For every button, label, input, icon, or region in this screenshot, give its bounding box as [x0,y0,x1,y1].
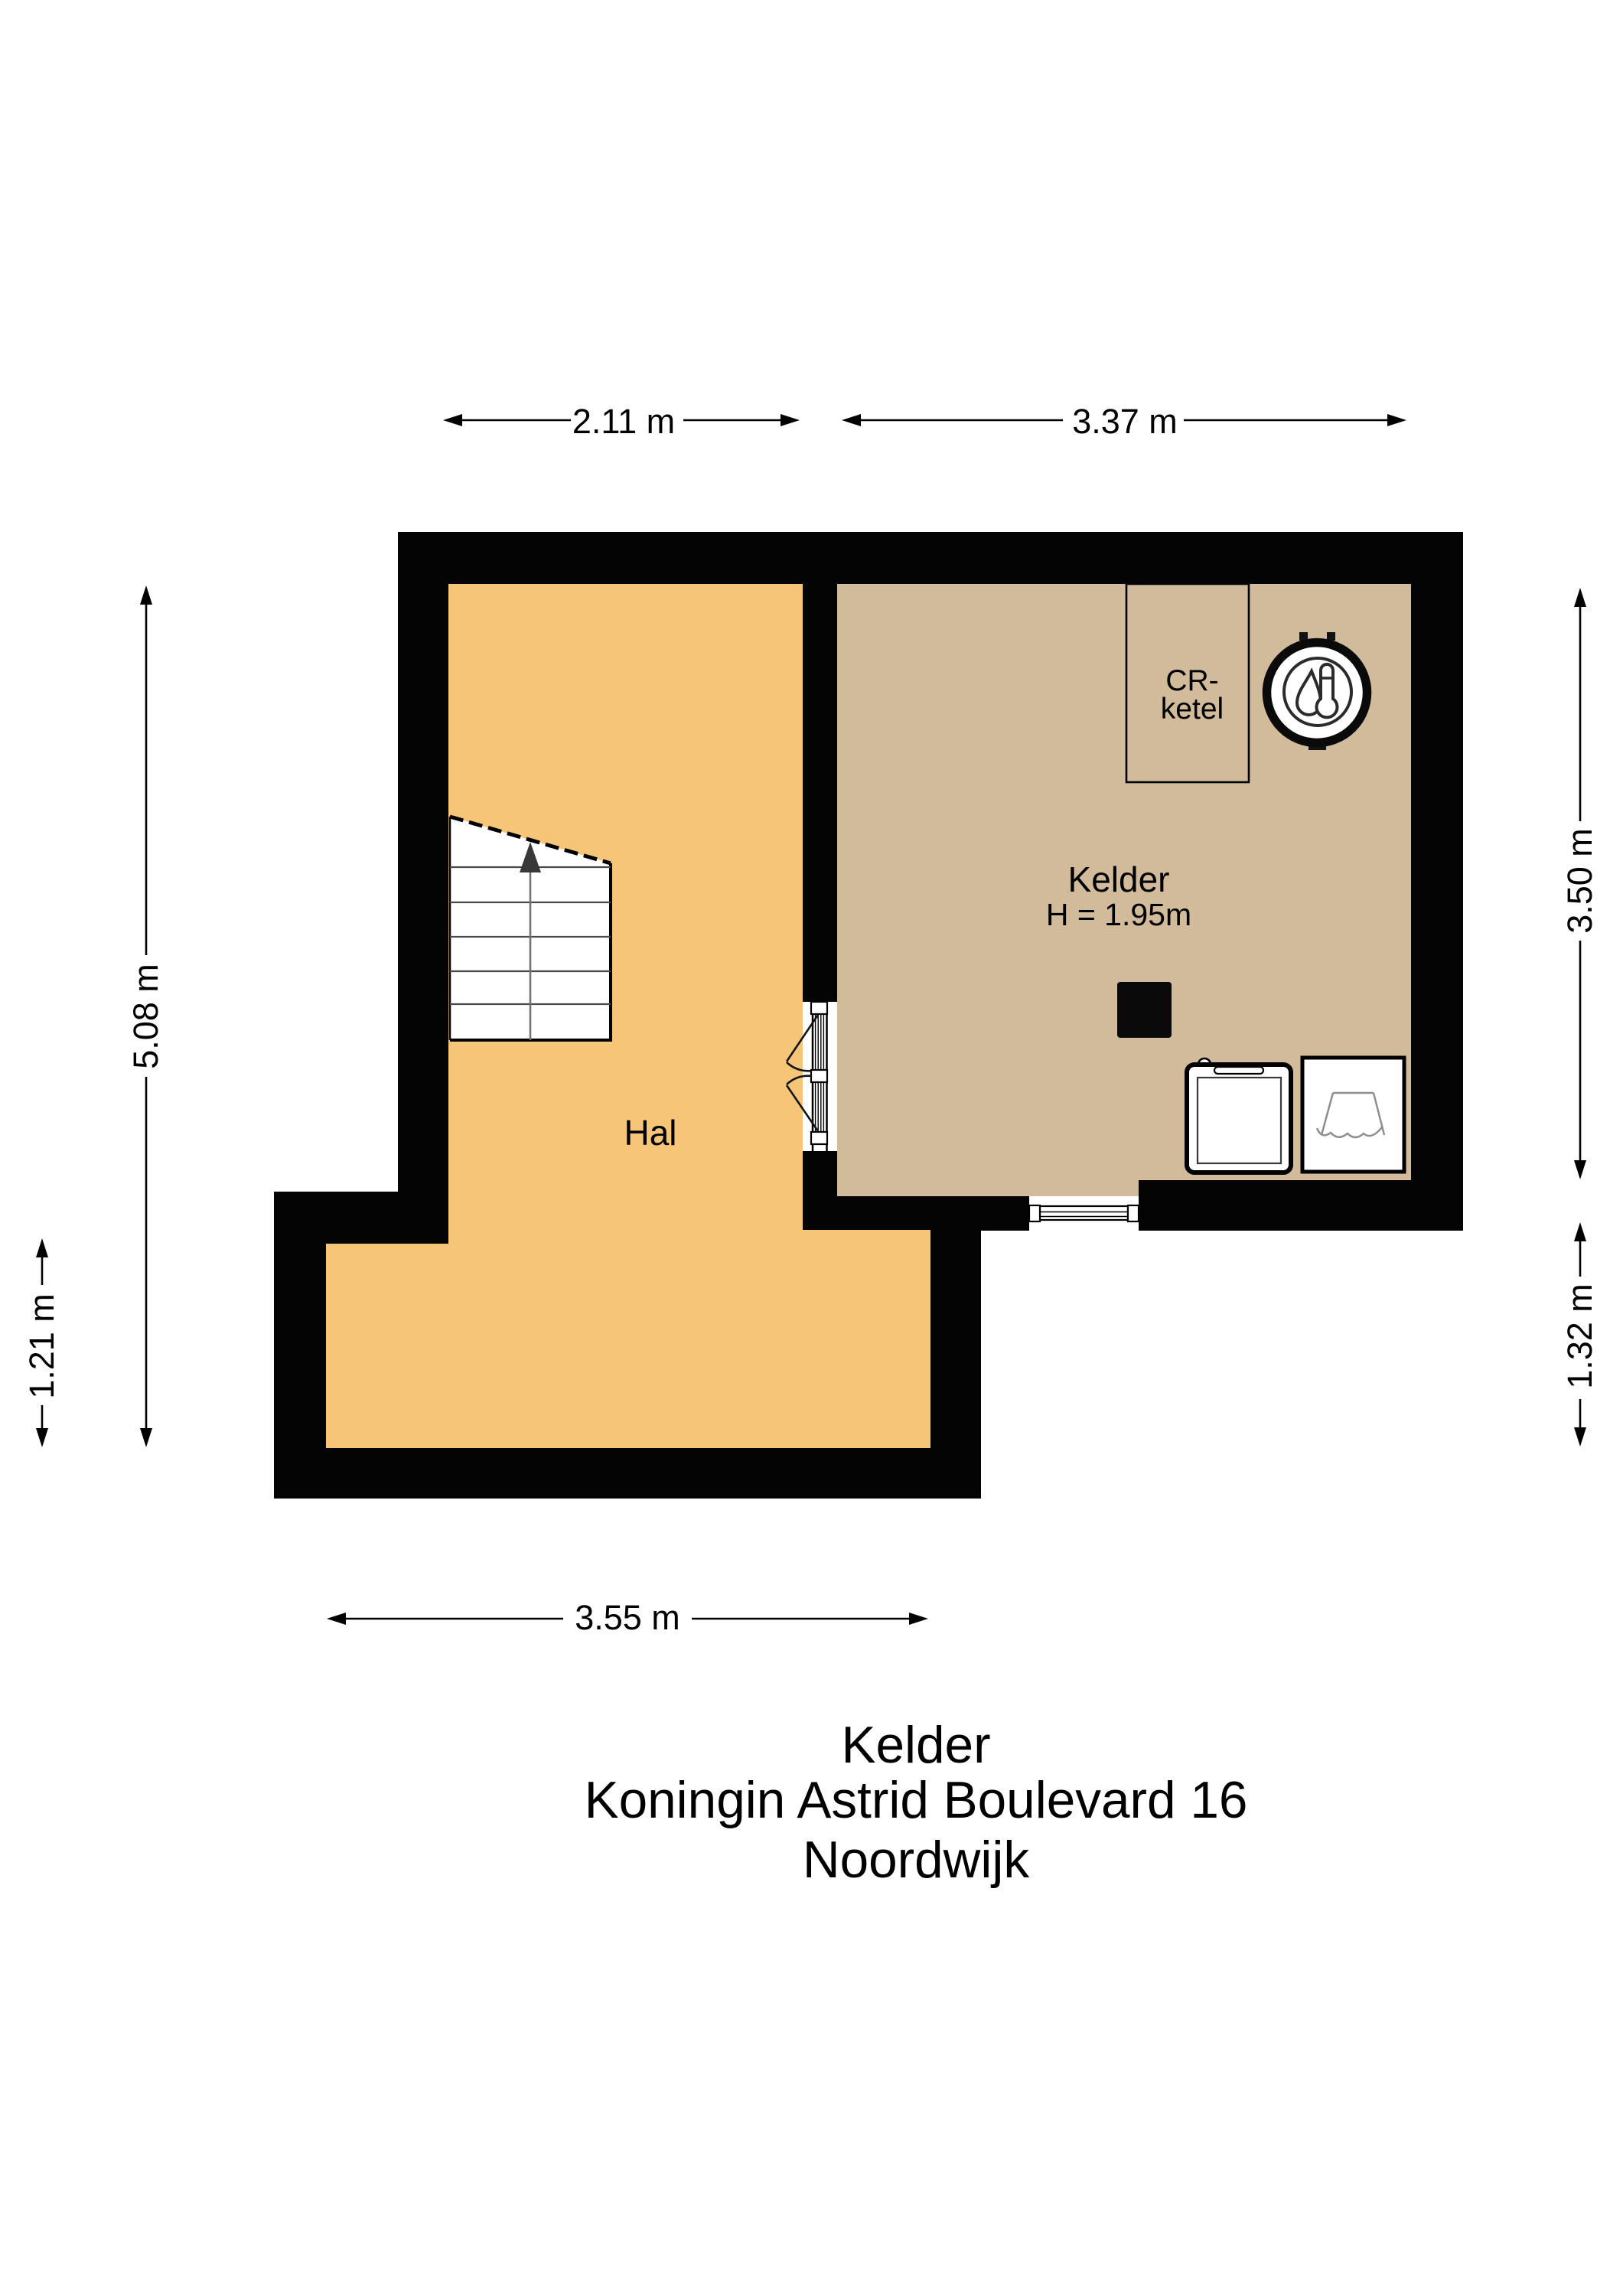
svg-text:Hal: Hal [624,1113,676,1153]
svg-text:5.08 m: 5.08 m [126,964,165,1069]
svg-text:Kelder: Kelder [1068,859,1170,899]
svg-text:3.55 m: 3.55 m [575,1598,680,1637]
svg-text:1.21 m: 1.21 m [22,1293,61,1399]
svg-text:H = 1.95m: H = 1.95m [1046,897,1191,932]
svg-text:1.32 m: 1.32 m [1560,1283,1599,1389]
svg-text:2.11 m: 2.11 m [572,402,675,441]
svg-text:Koningin Astrid Boulevard 16: Koningin Astrid Boulevard 16 [585,1772,1248,1829]
svg-text:3.50 m: 3.50 m [1560,828,1599,934]
svg-text:Kelder: Kelder [841,1717,990,1774]
svg-text:Noordwijk: Noordwijk [803,1831,1030,1889]
svg-text:ketel: ketel [1161,693,1224,726]
svg-text:3.37 m: 3.37 m [1072,402,1178,441]
